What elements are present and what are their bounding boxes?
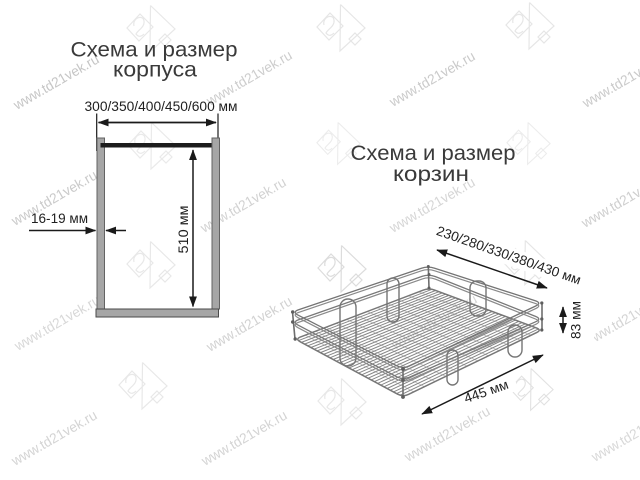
svg-text:16-19 мм: 16-19 мм xyxy=(31,211,88,226)
svg-text:корпуса: корпуса xyxy=(113,59,197,82)
svg-text:корзин: корзин xyxy=(393,163,469,186)
svg-text:300/350/400/450/600 мм: 300/350/400/450/600 мм xyxy=(85,99,238,114)
svg-text:83 мм: 83 мм xyxy=(569,301,584,339)
svg-text:510 мм: 510 мм xyxy=(175,206,191,254)
svg-text:Схема и размер: Схема и размер xyxy=(351,142,516,165)
